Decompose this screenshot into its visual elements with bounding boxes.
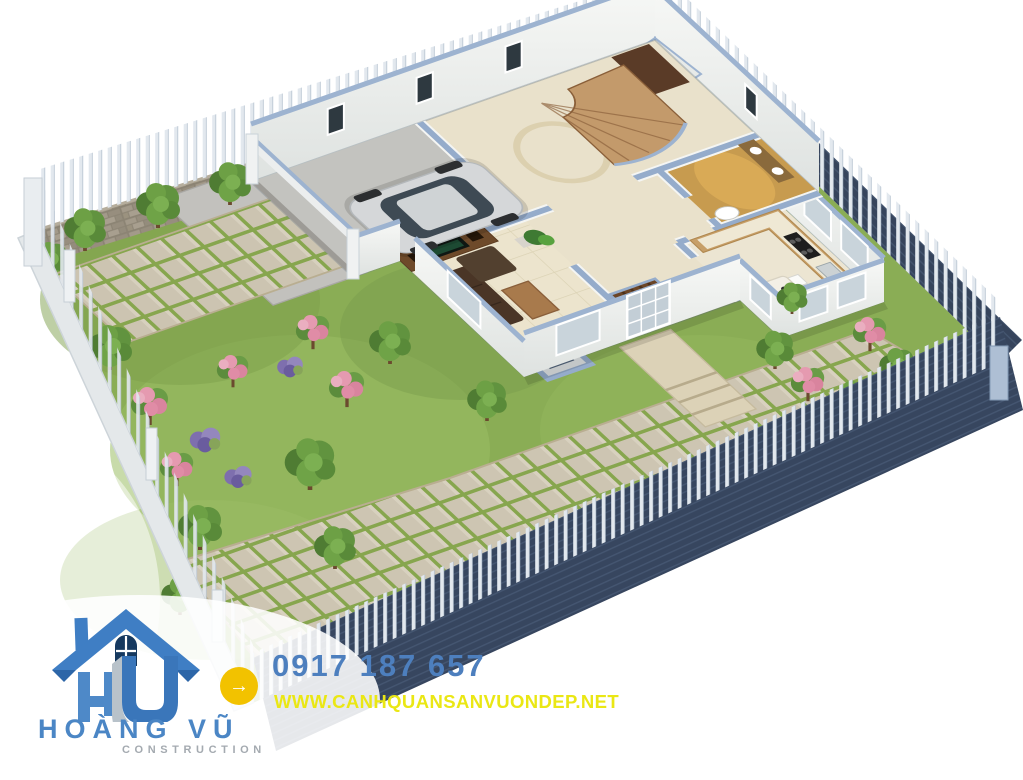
window-slit	[417, 72, 433, 104]
brand-name: HOÀNG VŨ	[38, 714, 240, 745]
website-url: WWW.CANHQUANSANVUONDEP.NET	[274, 691, 619, 713]
logo-house-icon	[48, 604, 206, 722]
arrow-badge: →	[220, 667, 258, 705]
wall-post	[24, 178, 42, 266]
wall-post	[146, 428, 157, 480]
window-slit	[506, 41, 522, 73]
brand-division-label: CONSTRUCTION	[122, 744, 266, 756]
window-slit	[328, 103, 344, 135]
arrow-icon: →	[229, 675, 249, 698]
phone-number: 0917 187 657	[272, 648, 486, 684]
wall-post	[64, 250, 75, 302]
fence-corner-post	[990, 346, 1008, 400]
